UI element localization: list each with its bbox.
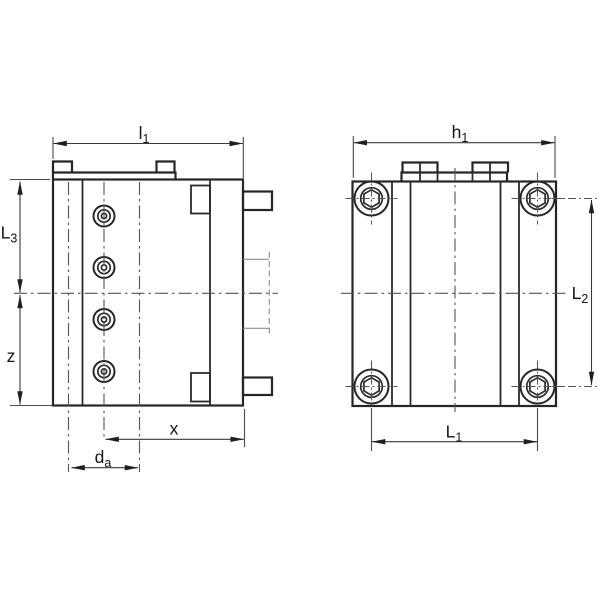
dim-label-L2: L2: [572, 283, 589, 306]
notch-top: [191, 186, 210, 214]
pin-bottom: [243, 378, 272, 396]
dim-x: x: [106, 409, 245, 447]
dim-label-da: da: [95, 447, 112, 470]
dim-h1: h1: [353, 122, 555, 178]
technical-drawing: l1 L3 z x da h1 L2 L1: [0, 0, 600, 600]
dim-z: z: [7, 295, 52, 406]
top-tab-left: [53, 162, 72, 173]
dim-label-l1: l1: [139, 123, 150, 146]
dim-L3: L3: [1, 180, 50, 293]
side-body-outline: [53, 180, 243, 406]
front-view: [341, 163, 568, 413]
dim-label-L3: L3: [1, 223, 18, 246]
top-tab-right: [157, 162, 175, 173]
dim-l1: l1: [53, 123, 243, 178]
notch-bottom: [191, 373, 210, 402]
dim-label-L1: L1: [446, 422, 463, 445]
dim-label-z: z: [7, 346, 16, 366]
drawing-canvas: l1 L3 z x da h1 L2 L1: [0, 0, 600, 600]
dim-label-x: x: [170, 419, 179, 439]
dim-L2: L2: [552, 199, 600, 387]
dim-da: da: [72, 447, 139, 470]
clamp-strip: [402, 173, 508, 182]
dim-L1: L1: [372, 408, 538, 451]
side-view: [14, 162, 278, 473]
dim-label-h1: h1: [452, 122, 469, 145]
pin-top: [243, 192, 272, 211]
